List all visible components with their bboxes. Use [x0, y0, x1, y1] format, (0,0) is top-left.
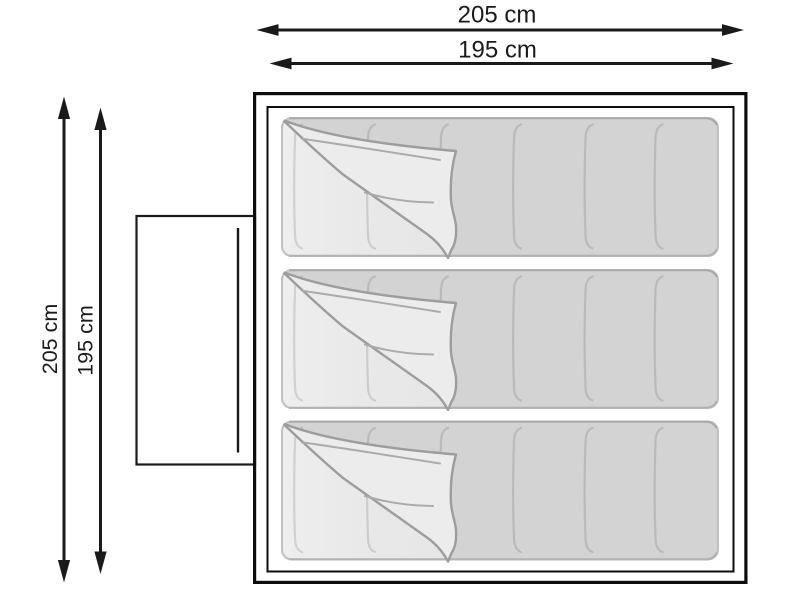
- svg-text:205 cm: 205 cm: [458, 2, 537, 29]
- svg-text:205 cm: 205 cm: [38, 304, 62, 375]
- svg-text:195 cm: 195 cm: [458, 37, 537, 64]
- svg-text:195 cm: 195 cm: [74, 305, 98, 376]
